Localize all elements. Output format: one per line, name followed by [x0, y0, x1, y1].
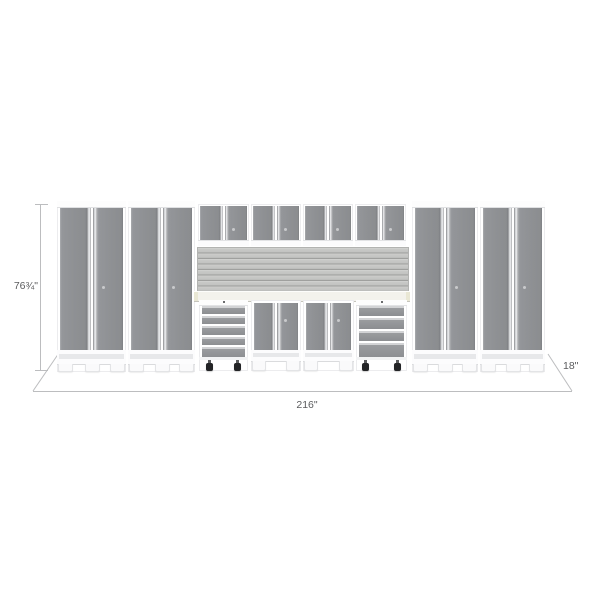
height-dimension-label: 76¾" — [2, 280, 38, 292]
cabinet-foot — [85, 364, 100, 372]
door-handles — [272, 303, 281, 351]
lock-knob — [102, 286, 105, 289]
lock-knob — [523, 286, 526, 289]
cabinet-foot — [438, 364, 453, 372]
locker-cabinet-left-2 — [128, 201, 195, 372]
wall-cabinet-2 — [251, 204, 301, 246]
drawer — [202, 316, 245, 324]
cabinet-foot — [129, 364, 144, 372]
drawer — [202, 326, 245, 334]
cabinet-base-rail — [57, 350, 126, 365]
cabinet-base-rail — [128, 350, 195, 365]
locker-cabinet-right-2 — [480, 201, 545, 372]
tool-drawer-cart-right — [356, 300, 407, 371]
cabinet-feet — [129, 365, 194, 372]
cabinet-foot — [304, 361, 318, 371]
cabinet-doors — [305, 206, 351, 241]
cabinet-foot — [286, 361, 300, 371]
rail-handle-dot — [223, 301, 225, 303]
cabinet-door — [167, 208, 193, 351]
product-dimension-diagram: 76¾" 216" 18" — [0, 0, 600, 600]
cabinet-feet — [481, 365, 544, 372]
tool-drawer-cart-left — [199, 300, 248, 371]
cabinet-door — [483, 208, 508, 351]
cabinet-bottom-strip — [251, 240, 301, 246]
cabinet-foot — [252, 361, 266, 371]
cabinet-doors — [60, 208, 123, 351]
cabinet-top-cap — [57, 201, 126, 208]
cabinet-top-cap — [412, 201, 478, 208]
cabinet-door — [281, 303, 299, 351]
caster-wheel — [234, 360, 241, 371]
door-handles — [324, 206, 332, 241]
cabinet-doors — [200, 206, 247, 241]
door-handles — [272, 206, 280, 241]
cabinet-foot — [179, 364, 194, 372]
cabinet-doors — [415, 208, 475, 351]
door-handles — [440, 208, 450, 351]
lock-knob — [284, 319, 287, 322]
width-dimension-label: 216" — [277, 399, 337, 411]
door-handles — [324, 303, 333, 351]
locker-cabinet-right-1 — [412, 201, 478, 372]
drawer-stack — [359, 306, 404, 358]
wall-cabinet-3 — [303, 204, 353, 246]
cabinet-bottom-strip — [198, 240, 249, 246]
lock-knob — [232, 228, 235, 231]
door-handles — [220, 206, 228, 241]
cabinet-door — [60, 208, 87, 351]
caster-wheel — [206, 360, 213, 371]
drawer — [202, 337, 245, 345]
cabinet-bottom-strip — [355, 240, 406, 246]
cabinet-door — [357, 206, 377, 241]
cabinet-door — [450, 208, 475, 351]
cabinet-door — [253, 206, 272, 241]
cabinet-door — [280, 206, 299, 241]
door-handles — [87, 208, 97, 351]
cabinet-door — [305, 206, 324, 241]
cabinet-doors — [254, 303, 298, 351]
cabinet-feet — [58, 365, 125, 372]
cabinet-foot — [339, 361, 353, 371]
base-cabinet-1 — [251, 300, 301, 371]
lock-knob — [336, 228, 339, 231]
drawer — [359, 306, 404, 316]
drawer — [202, 306, 245, 314]
cabinet-door — [332, 206, 351, 241]
cabinet-foot — [481, 364, 496, 372]
cabinet-foot — [462, 364, 477, 372]
depth-dimension-label: 18" — [563, 360, 593, 372]
lock-knob — [337, 319, 340, 322]
locker-cabinet-left-1 — [57, 201, 126, 372]
cabinet-doors — [357, 206, 404, 241]
worktop-end-cap — [194, 292, 198, 301]
cabinet-door — [415, 208, 440, 351]
drawer-stack — [202, 306, 245, 358]
cabinet-door — [333, 303, 351, 351]
cabinet-top-cap — [480, 201, 545, 208]
cabinet-foot — [413, 364, 428, 372]
cabinet-foot — [506, 364, 521, 372]
door-handles — [377, 206, 385, 241]
lock-knob — [284, 228, 287, 231]
caster-wheel — [362, 360, 369, 371]
lock-knob — [172, 286, 175, 289]
cabinet-foot — [58, 364, 73, 372]
cabinet-feet — [413, 365, 477, 372]
caster-wheel — [394, 360, 401, 371]
cabinet-foot — [529, 364, 544, 372]
cabinet-door — [131, 208, 157, 351]
cabinet-feet — [304, 362, 353, 371]
cabinet-door — [200, 206, 220, 241]
drawer — [359, 331, 404, 341]
slatwall-panel — [197, 247, 409, 293]
wall-cabinet-4 — [355, 204, 406, 246]
cabinet-base-rail — [480, 350, 545, 365]
cabinet-door — [254, 303, 272, 351]
door-handles — [157, 208, 167, 351]
cabinet-doors — [131, 208, 192, 351]
lock-knob — [389, 228, 392, 231]
drawer — [359, 318, 404, 328]
cabinet-foot — [155, 364, 170, 372]
cabinet-door — [228, 206, 248, 241]
door-handles — [508, 208, 518, 351]
cabinet-feet — [252, 362, 300, 371]
cabinet-top-cap — [128, 201, 195, 208]
cabinet-doors — [253, 206, 299, 241]
cabinet-door — [306, 303, 324, 351]
base-cabinet-2 — [303, 300, 354, 371]
cabinet-base-rail — [412, 350, 478, 365]
cabinet-door — [518, 208, 543, 351]
rail-handle-dot — [381, 301, 383, 303]
cabinet-door — [385, 206, 405, 241]
cabinet-doors — [483, 208, 542, 351]
cabinet-foot — [110, 364, 125, 372]
cabinet-bottom-strip — [303, 240, 353, 246]
drawer — [359, 343, 404, 358]
wall-cabinet-1 — [198, 204, 249, 246]
cabinet-door — [97, 208, 124, 351]
cabinet-doors — [306, 303, 351, 351]
